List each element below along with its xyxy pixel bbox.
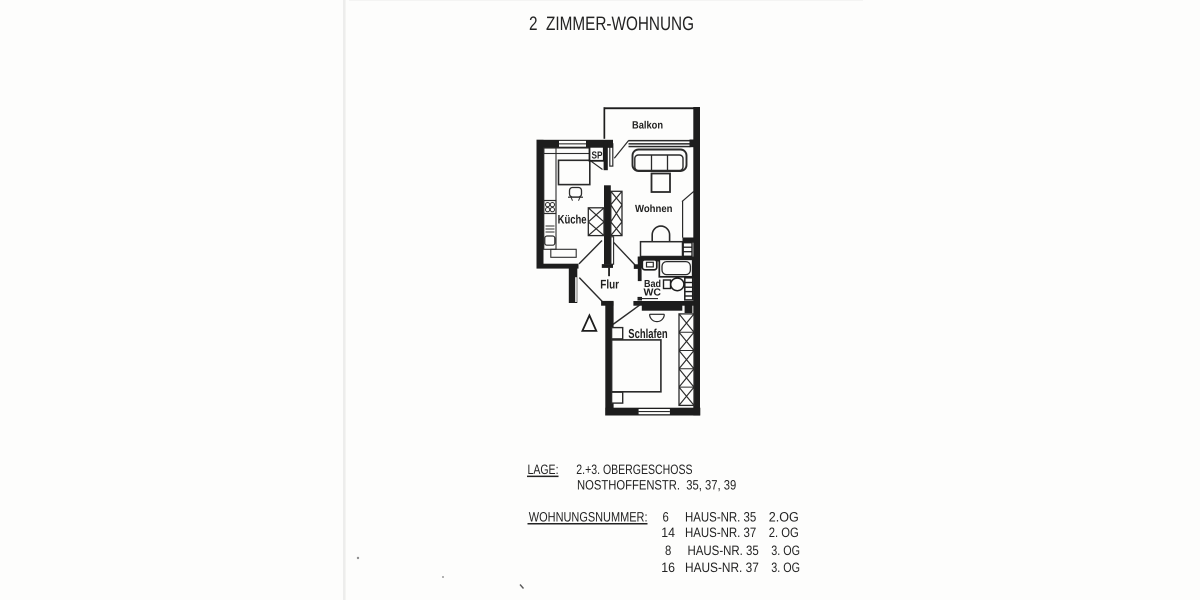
svg-text:Balkon: Balkon <box>632 120 663 132</box>
svg-text:LAGE:: LAGE: <box>528 462 559 477</box>
svg-text:HAUS-NR. 37: HAUS-NR. 37 <box>685 560 759 575</box>
svg-text:SP: SP <box>592 151 603 162</box>
svg-text:14: 14 <box>661 525 675 540</box>
svg-text:Wohnen: Wohnen <box>635 204 673 215</box>
svg-text:WC: WC <box>644 287 662 298</box>
svg-text:Küche: Küche <box>558 212 587 226</box>
svg-text:2.+3. OBERGESCHOSS: 2.+3. OBERGESCHOSS <box>576 462 692 477</box>
svg-text:HAUS-NR. 35: HAUS-NR. 35 <box>688 543 759 558</box>
svg-text:Flur: Flur <box>600 277 619 291</box>
svg-text:2 ZIMMER-WOHNUNG: 2 ZIMMER-WOHNUNG <box>529 13 694 35</box>
svg-text:3. OG: 3. OG <box>771 560 800 575</box>
svg-text:HAUS-NR. 35: HAUS-NR. 35 <box>685 509 756 524</box>
svg-text:8: 8 <box>665 543 671 558</box>
svg-text:Schlafen: Schlafen <box>628 326 667 341</box>
svg-text:6: 6 <box>663 509 669 524</box>
svg-text:HAUS-NR. 37: HAUS-NR. 37 <box>685 525 756 540</box>
svg-text:3. OG: 3. OG <box>771 543 800 558</box>
svg-text:16: 16 <box>661 560 675 575</box>
svg-text:2. OG: 2. OG <box>769 525 799 540</box>
svg-text:WOHNUNGSNUMMER:: WOHNUNGSNUMMER: <box>529 509 648 524</box>
svg-text:NOSTHOFFENSTR. 35, 37, 39: NOSTHOFFENSTR. 35, 37, 39 <box>577 478 736 493</box>
svg-text:2.OG: 2.OG <box>769 509 799 524</box>
